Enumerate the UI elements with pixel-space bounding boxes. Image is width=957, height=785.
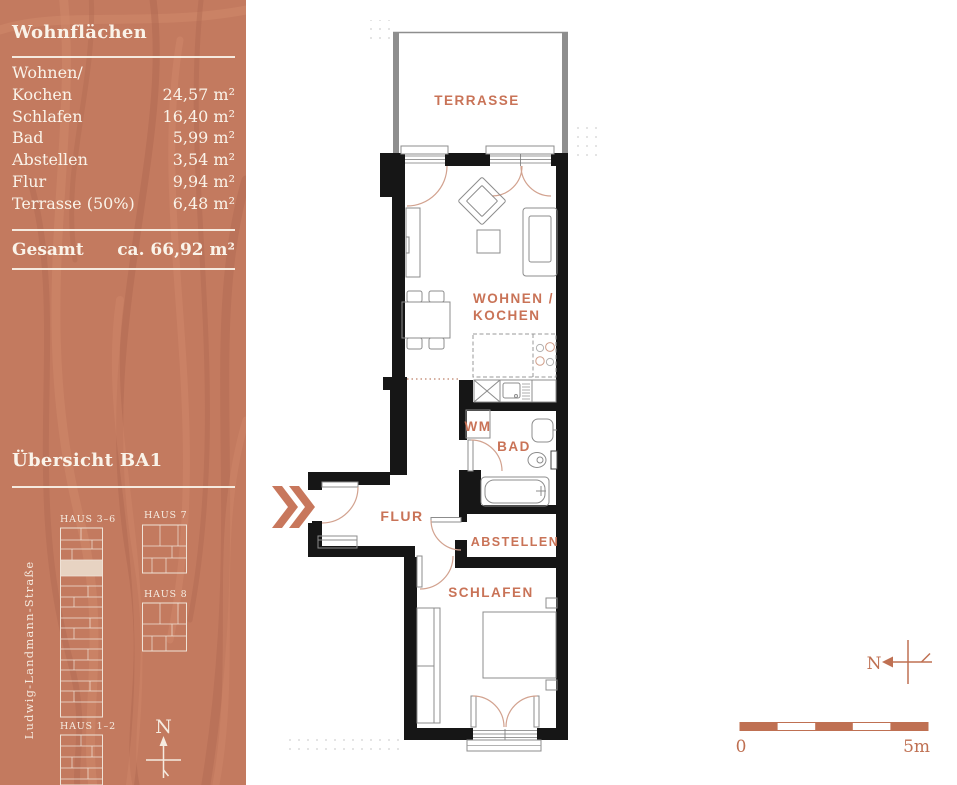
room-label-wohnen-2: KOCHEN [473, 308, 541, 323]
divider [12, 56, 235, 58]
scale-end-label: 5m [903, 737, 930, 757]
room-label-terrasse: TERRASSE [434, 93, 520, 108]
kitchen-units [473, 334, 556, 402]
living-furniture [402, 177, 557, 349]
area-value: 9,94 m² [173, 171, 235, 193]
area-row: Abstellen 3,54 m² [12, 149, 235, 171]
room-label-flur: FLUR [380, 508, 423, 524]
area-row: Flur 9,94 m² [12, 171, 235, 193]
overview-title: Übersicht BA1 [12, 450, 162, 471]
compass-n-label: N [867, 654, 882, 674]
scale-start-label: 0 [736, 737, 747, 757]
area-label: Wohnen/ [12, 62, 83, 84]
area-value: 3,54 m² [173, 149, 235, 171]
room-label-wohnen-1: WOHNEN / [473, 291, 554, 306]
floorplan-page: TERRASSE WOHNEN / KOCHEN WM BAD FLUR ABS… [0, 0, 957, 785]
room-label-schlafen: SCHLAFEN [448, 585, 534, 600]
area-row: Wohnen/ [12, 62, 235, 84]
info-sidebar: HAUS 3–6 HAUS 7 HAUS 8 HAUS 1–2 Ludwig-L… [0, 0, 246, 785]
bedroom-window [467, 696, 541, 751]
room-label-bad: BAD [497, 439, 531, 454]
sidebar-content: Wohnflächen Wohnen/ Kochen 24,57 m² Schl… [0, 0, 246, 785]
area-value: 5,99 m² [173, 127, 235, 149]
north-compass-icon: N [867, 640, 932, 684]
area-label: Abstellen [12, 149, 88, 171]
area-row: Bad 5,99 m² [12, 127, 235, 149]
scale-bar: 0 5m [736, 723, 930, 758]
room-label-abstellen: ABSTELLEN [471, 535, 560, 549]
area-label: Flur [12, 171, 46, 193]
area-label: Bad [12, 127, 44, 149]
area-row: Schlafen 16,40 m² [12, 106, 235, 128]
divider [12, 486, 235, 488]
entrance-chevron-icon [272, 486, 315, 528]
total-row: Gesamt ca. 66,92 m² [12, 240, 235, 260]
area-table: Wohnen/ Kochen 24,57 m² Schlafen 16,40 m… [12, 62, 235, 215]
area-row: Terrasse (50%) 6,48 m² [12, 193, 235, 215]
area-value: 6,48 m² [173, 193, 235, 215]
area-label: Kochen [12, 84, 72, 106]
divider [12, 268, 235, 270]
total-value: ca. 66,92 m² [117, 240, 235, 260]
room-label-wm: WM [465, 419, 492, 434]
area-value: 16,40 m² [163, 106, 235, 128]
area-label: Schlafen [12, 106, 83, 128]
divider [12, 229, 235, 231]
areas-title: Wohnflächen [12, 22, 147, 43]
area-label: Terrasse (50%) [12, 193, 135, 215]
area-row: Kochen 24,57 m² [12, 84, 235, 106]
total-label: Gesamt [12, 240, 84, 260]
area-value: 24,57 m² [163, 84, 235, 106]
